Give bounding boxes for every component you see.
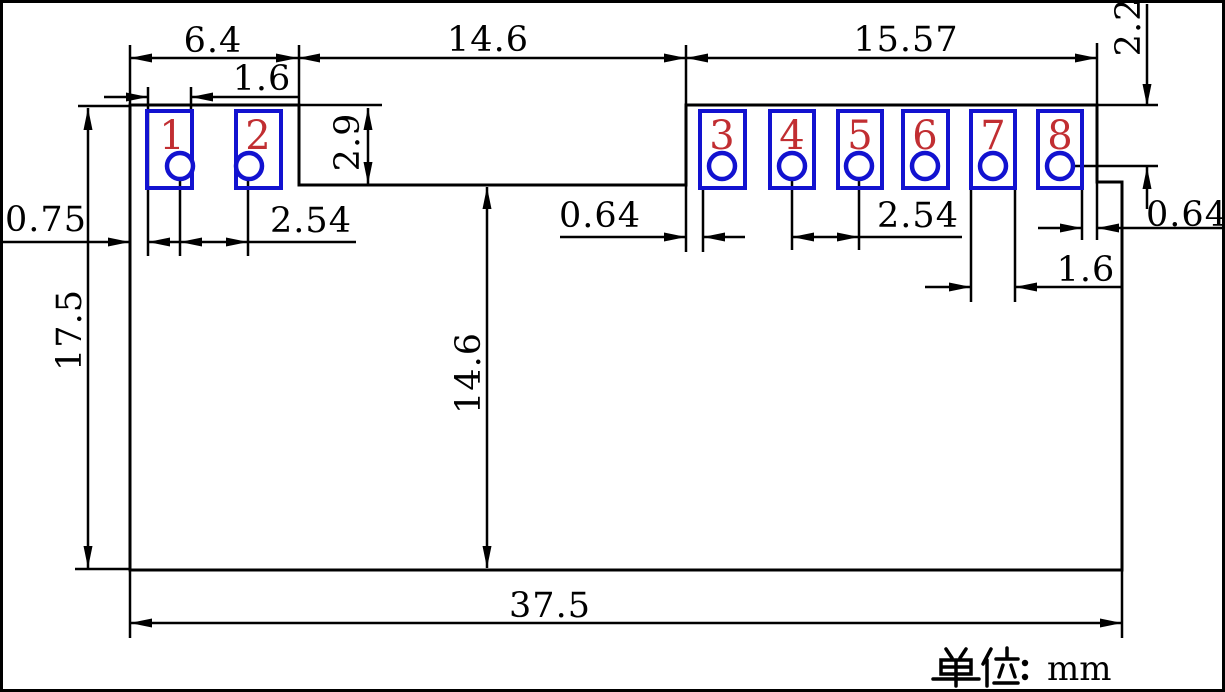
pad-1-label: 1: [159, 113, 184, 159]
dim-board-width: 37.5: [509, 586, 591, 626]
pad-5-label: 5: [847, 113, 872, 159]
dim-notch-width: 14.6: [447, 20, 529, 60]
pad-6-label: 6: [912, 113, 937, 159]
fullwidth-colon-dot-top: [1022, 660, 1028, 666]
pad-2: 2: [236, 111, 281, 188]
units-mm: mm: [1047, 649, 1111, 689]
pad-1: 1: [147, 111, 193, 188]
dim-pad-pitch-left: 2.54: [270, 201, 352, 241]
pad-3-label: 3: [709, 113, 734, 159]
dim-pad-width-right: 1.6: [1057, 250, 1116, 290]
board-outline: [130, 105, 1122, 570]
drawing-svg: 1 2 3 4 5 6 7: [0, 0, 1225, 692]
pad-4-label: 4: [779, 113, 804, 159]
dim-pad8-to-edge: 0.64: [1146, 195, 1225, 235]
footprint-dimension-drawing: 单位：mm: [0, 0, 1225, 692]
pad-7-label: 7: [980, 113, 1005, 159]
pad-8-label: 8: [1047, 113, 1072, 159]
dim-board-height: 17.5: [50, 289, 90, 371]
pad-7: 7: [971, 111, 1015, 188]
pad-6: 6: [903, 111, 948, 188]
dim-edge-to-pad1: 0.75: [5, 200, 87, 240]
pad-2-label: 2: [245, 113, 270, 159]
dim-pad-width-left: 1.6: [233, 59, 292, 99]
pad-8: 8: [1038, 111, 1082, 188]
dim-top-to-hole: 2.2: [1109, 0, 1149, 56]
dim-notch-to-pad3: 0.64: [559, 196, 641, 236]
chinese-units-glyph: [933, 648, 1018, 686]
pad-3: 3: [700, 111, 745, 188]
dim-notch-to-bottom: 14.6: [449, 332, 489, 414]
units-label: mm: [933, 648, 1111, 689]
dimension-labels: 6.4 14.6 15.57 1.6 2.9 0.75 2.54 17.5 14…: [5, 0, 1225, 626]
pad-4: 4: [770, 111, 814, 188]
pad-5: 5: [838, 111, 882, 188]
dim-notch-depth: 2.9: [328, 113, 368, 172]
dim-right-section-width: 15.57: [853, 20, 958, 60]
dim-pad-pitch-right: 2.54: [877, 196, 959, 236]
dim-left-section-width: 6.4: [184, 21, 243, 61]
fullwidth-colon-dot-bottom: [1022, 674, 1028, 680]
dimension-lines: [3, 4, 1222, 623]
